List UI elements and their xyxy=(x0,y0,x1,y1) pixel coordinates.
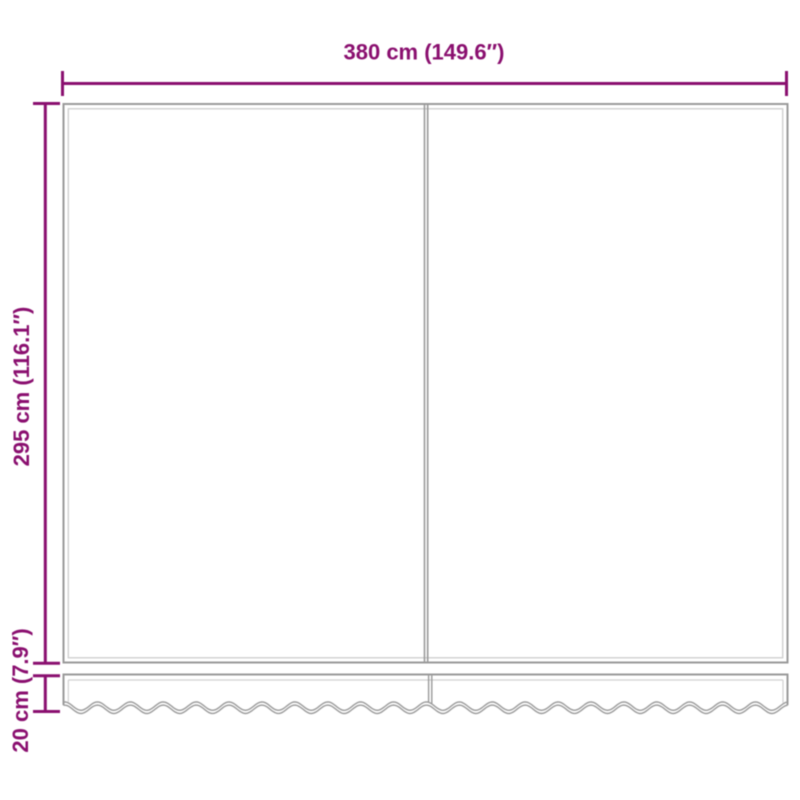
svg-text:380 cm (149.6″): 380 cm (149.6″) xyxy=(344,40,505,65)
svg-text:295 cm (116.1″): 295 cm (116.1″) xyxy=(9,307,34,467)
svg-text:20 cm (7.9″): 20 cm (7.9″) xyxy=(8,628,33,752)
